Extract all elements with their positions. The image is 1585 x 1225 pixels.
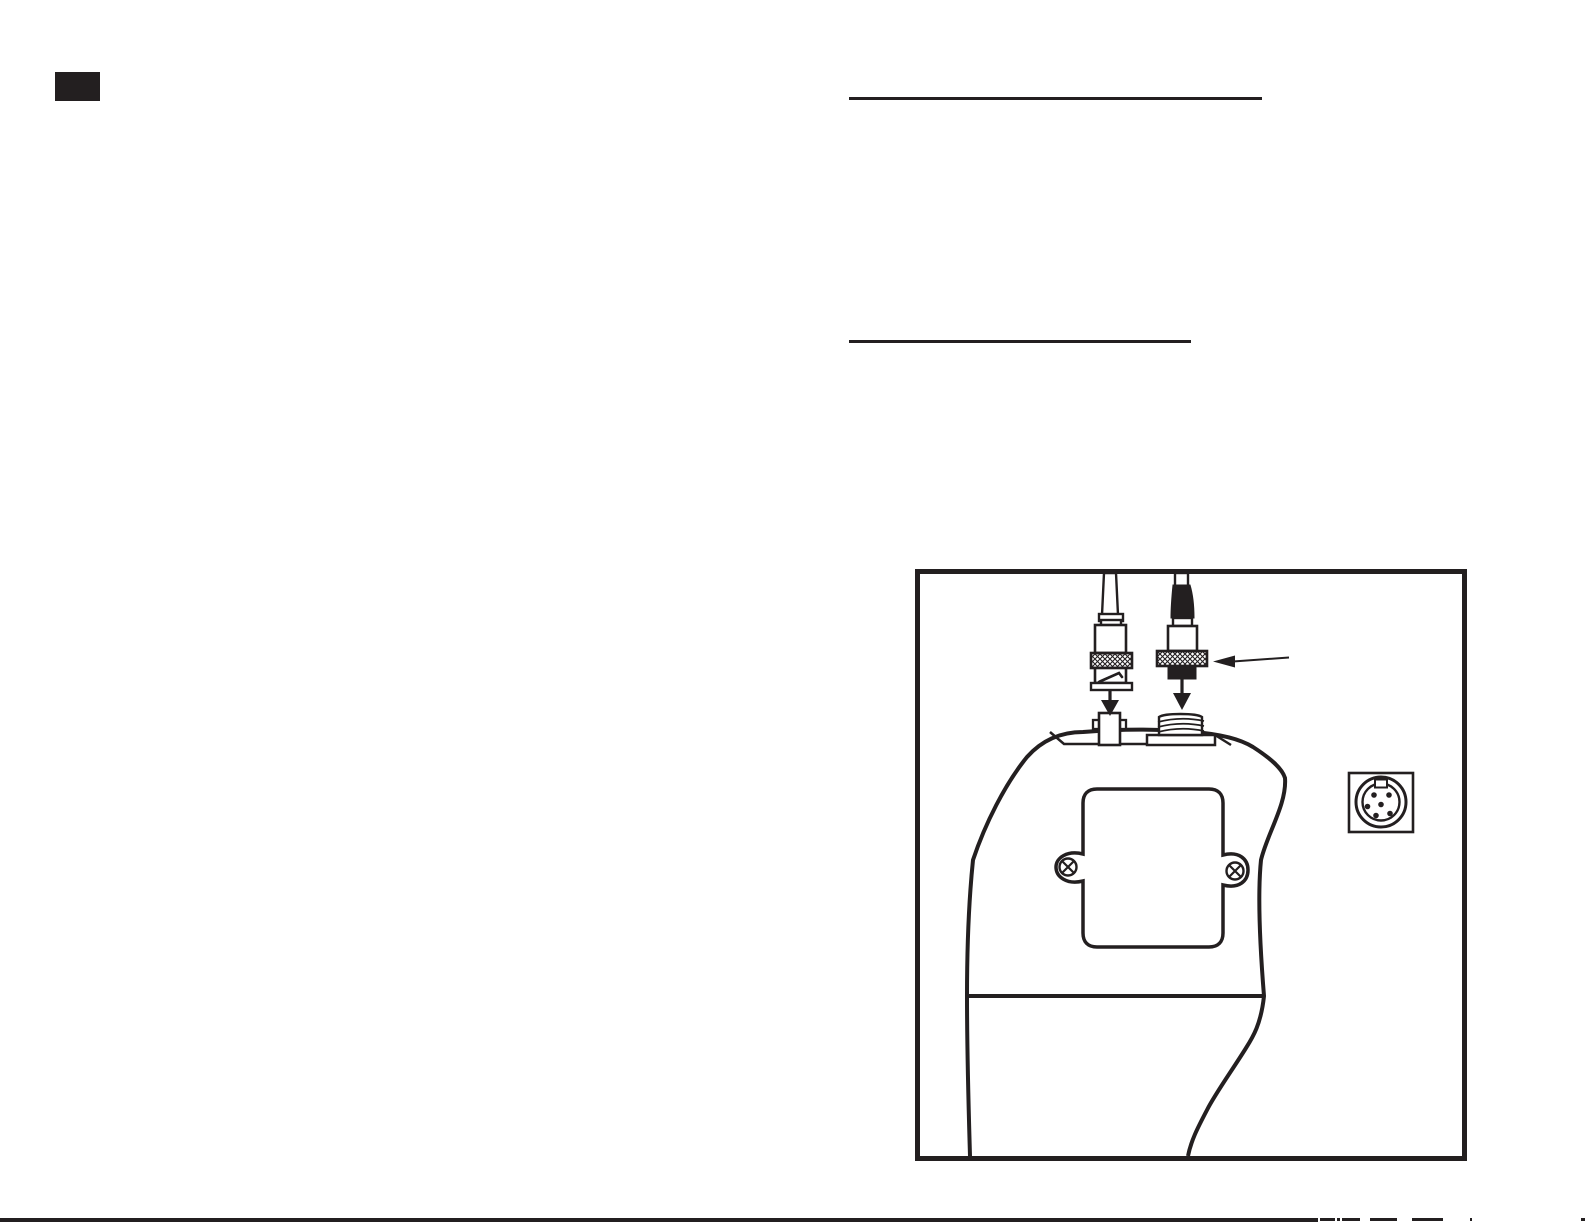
bottom-edge-fragment [1337, 1218, 1340, 1221]
page-number-block [55, 72, 100, 101]
bottom-edge-fragment [1370, 1218, 1397, 1221]
figure-box [915, 569, 1467, 1161]
bottom-edge-fragment [1470, 1218, 1472, 1221]
bottom-edge-fragment [1581, 1218, 1585, 1221]
manual-page: { "page": { "kind": "instruction-manual … [0, 0, 1585, 1225]
bottom-edge-fragment [1342, 1218, 1360, 1221]
down-arrow-right [1173, 679, 1191, 710]
probe-cable-connector [1157, 573, 1207, 679]
connector-diagram [915, 569, 1467, 1161]
panel-screw-left [1060, 859, 1077, 876]
bnc-knurled-ring [1091, 653, 1132, 668]
page-bottom-edge-line [0, 1218, 1318, 1222]
bottom-edge-fragment [1412, 1218, 1443, 1221]
callout-arrow-to-knurled-ring [1213, 656, 1289, 668]
strain-relief [1171, 585, 1194, 618]
battery-cover-panel [1056, 789, 1248, 947]
bnc-cable-connector [1091, 573, 1132, 690]
bnc-jack-on-meter [1093, 713, 1126, 745]
heading-rule [849, 340, 1191, 343]
probe-knurled-ring [1157, 651, 1207, 666]
heading-rule [849, 97, 1262, 100]
din-socket-port [1349, 773, 1413, 832]
bottom-edge-fragment [1320, 1218, 1335, 1221]
panel-screw-right [1227, 863, 1244, 880]
